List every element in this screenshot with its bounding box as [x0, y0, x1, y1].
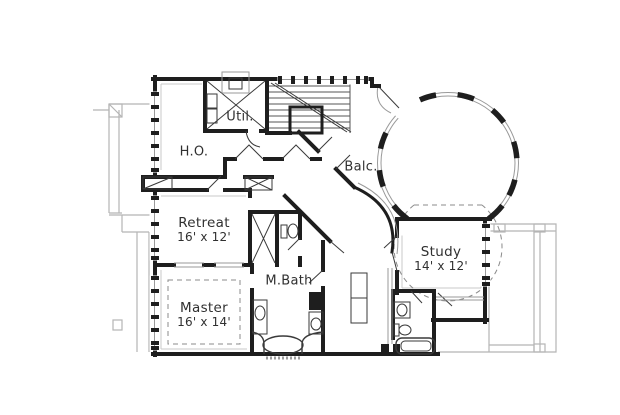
room-label-retreat: Retreat	[178, 215, 230, 231]
bathtub-icon	[396, 338, 435, 354]
room-label-util: Util.	[226, 110, 253, 125]
wc-door	[288, 238, 300, 250]
southeast-walls	[393, 219, 490, 354]
room-dims-master: 16' x 14'	[177, 315, 231, 329]
toilet-icon-bath2	[399, 325, 411, 335]
garden-tub-icon	[252, 332, 323, 354]
floor-plan-page: { "rooms": { "util": { "label": "Util." …	[0, 0, 620, 415]
double-door-hall-2	[282, 145, 310, 159]
roof-overhang-left	[93, 104, 155, 352]
stairs	[269, 81, 351, 133]
sink-icon-bath2	[397, 304, 407, 316]
vanity-sinks-master	[253, 292, 323, 334]
study-door	[384, 236, 397, 271]
room-label-ho: H.O.	[180, 145, 209, 160]
room-label-balc: Balc.	[344, 160, 377, 175]
room-label-mbath: M.Bath	[265, 274, 312, 289]
utility-door	[246, 131, 260, 147]
room-dims-study: 14' x 12'	[414, 259, 468, 273]
toilet-icon-master	[281, 224, 298, 238]
stair-landing-closet	[290, 107, 322, 133]
room-label-master: Master	[180, 300, 228, 316]
bath2-fixtures	[394, 302, 435, 354]
room-label-study: Study	[421, 244, 461, 260]
shower-icon	[252, 214, 275, 263]
floor-plan-svg	[0, 0, 620, 415]
room-dims-retreat: 16' x 12'	[177, 230, 231, 244]
closet-door	[330, 241, 344, 253]
curved-wall	[354, 187, 393, 252]
